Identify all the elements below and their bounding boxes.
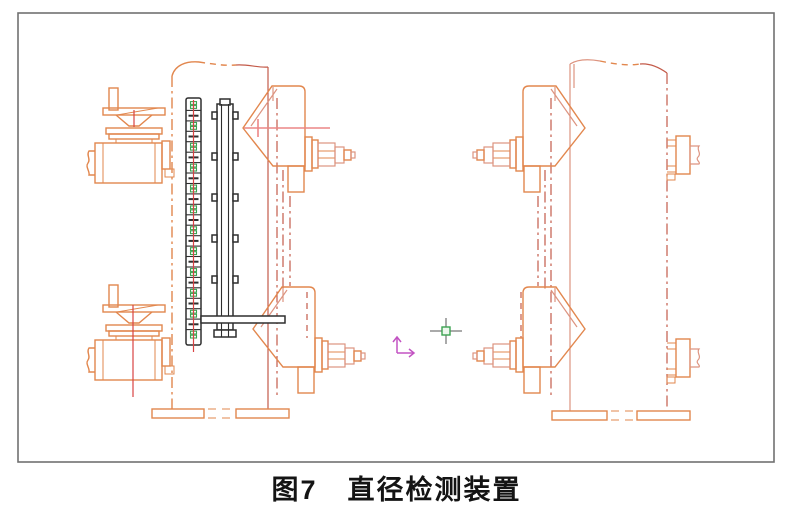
pointer-bar	[201, 316, 285, 323]
drawing-border	[18, 13, 774, 462]
figure-caption: 图7 直径检测装置	[0, 468, 793, 507]
probe-axis-lines-right	[521, 98, 551, 395]
probe-axis-lines-left	[277, 98, 307, 395]
ruler-scale	[186, 98, 201, 352]
guide-rail	[212, 99, 238, 337]
handwheel-assembly-bottom	[87, 285, 174, 380]
base-plate-right	[552, 411, 690, 420]
probe-bracket-bottom-left	[253, 287, 365, 393]
probe-bracket-top-right	[473, 86, 585, 192]
base-plate-left	[152, 409, 289, 418]
handwheel-assembly-top	[87, 88, 174, 183]
probe-bracket-bottom-right	[473, 287, 585, 393]
side-fitting-bottom-right	[667, 339, 699, 383]
figure-page: 图7 直径检测装置	[0, 0, 793, 524]
figure-title: 直径检测装置	[348, 468, 522, 507]
ucs-xy-axis-icon	[393, 337, 414, 357]
probe-centerline	[244, 119, 330, 137]
cad-drawing	[0, 0, 793, 524]
figure-number: 图7	[271, 468, 317, 507]
probe-bracket-top-left	[243, 86, 355, 192]
crosshair-pickbox-icon	[430, 318, 462, 344]
side-fitting-top-right	[667, 136, 699, 180]
right-column	[570, 60, 667, 411]
